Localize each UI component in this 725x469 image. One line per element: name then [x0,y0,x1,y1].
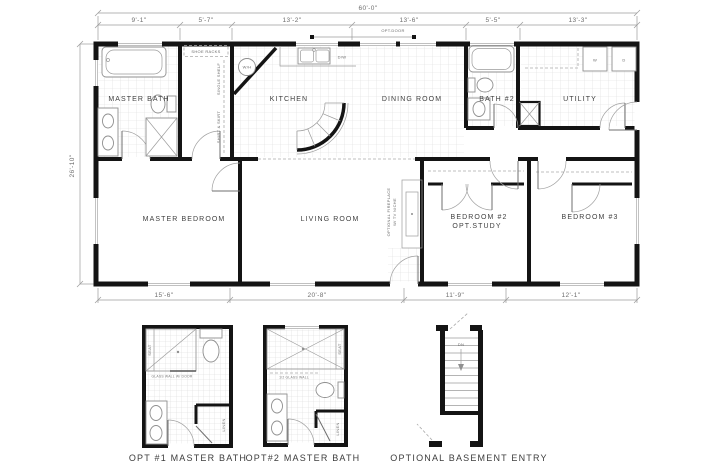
utility-exterior-door-gap [635,102,640,130]
note-shoe-racks: SHOE RACKS [191,49,220,54]
room-label-bedroom3: BEDROOM #3 [562,214,619,221]
dim-top-1: 5'-7" [199,17,214,24]
hall-closet [184,46,228,156]
note-shirt-skirt: SHIRT & SKIRT [216,111,221,144]
basement-title: OPTIONAL BASEMENT ENTRY [390,453,547,463]
opt1-seat-label: SEAT [147,344,152,356]
opt2-linen-label: LINEN [335,422,340,435]
dim-top-0: 9'-1" [132,17,147,24]
room-label-living: LIVING ROOM [301,216,360,223]
opt1-glass-label: GLASS WALL W/ DOOR [151,375,192,379]
sink [103,114,114,128]
opt2-title: OPT#2 MASTER BATH [246,453,361,463]
down-arrow-icon [458,364,464,371]
main-plan: MASTER BATH KITCHEN DINING ROOM BATH #2 … [94,28,640,287]
stair-treads [445,338,478,406]
opt2-glass-label: 1/2 GLASS WALL [279,376,309,380]
note-single-shelf: SINGLE SHELF [216,63,221,96]
dim-top-3: 13'-6" [400,17,419,24]
room-label-bedroom2-opt: OPT.STUDY [452,223,501,230]
floor-plan-drawing: 60'-0" 9'-1" 5'-7" 13'-2" 13'-6" 5'-5" 1… [0,0,725,469]
dim-ticks-top [95,16,640,40]
note-fireplace-2: W/ TV NICHE [392,198,397,226]
opt1-title: OPT #1 MASTER BATH [129,453,247,463]
sink [103,136,114,150]
bathtub [469,46,514,72]
note-water-heater: W/H [243,65,252,70]
dim-bottom-0: 15'-6" [155,292,174,299]
note-washer: W [593,58,597,63]
optional-fireplace [402,180,422,248]
note-fireplace-1: OPTIONAL FIREPLACE [386,188,391,237]
dim-bottom-1: 20'-8" [308,292,327,299]
dim-ticks-bottom [95,288,640,303]
note-dishwasher: D/W [338,55,347,60]
note-opt-door: OPT.DOOR [381,28,404,33]
optional-door-indicator [310,35,416,39]
dim-overall-width: 60'-0" [359,5,378,12]
dim-top-5: 13'-3" [569,17,588,24]
entry-floor [388,248,420,282]
room-label-dining: DINING ROOM [382,96,442,103]
room-label-master-bath: MASTER BATH [108,96,169,103]
kitchen-sink [298,48,330,64]
dim-top-4: 5'-5" [486,17,501,24]
detail-opt2-master-bath: SEAT 1/2 GLASS WALL LINEN OPT#2 MASTER B… [246,325,361,464]
sink [473,102,485,117]
opt1-linen-label: LINEN [221,418,226,431]
dim-bottom-3: 12'-1" [562,292,581,299]
dim-overall-depth: 26'-10" [69,154,76,177]
basement-dn-label: DN [458,342,464,347]
room-label-master-bedroom: MASTER BEDROOM [143,216,226,223]
floor-plan-canvas: 60'-0" 9'-1" 5'-7" 13'-2" 13'-6" 5'-5" 1… [0,0,725,469]
dim-bottom-2: 11'-9" [446,292,465,299]
detail-basement-entry: DN OPTIONAL BASEMENT ENTRY [390,313,547,463]
toilet [477,78,493,92]
note-dryer: D [622,58,625,63]
bathtub [102,47,166,77]
opt2-seat-label: SEAT [337,343,342,355]
front-door-gap [390,282,418,287]
dim-top-2: 13'-2" [283,17,302,24]
detail-opt1-master-bath: SEAT GLASS WALL W/ DOOR LINEN OPT #1 MAS… [129,327,247,463]
room-label-bath2: BATH #2 [479,96,515,103]
room-label-bedroom2: BEDROOM #2 [451,214,508,221]
room-label-utility: UTILITY [563,96,597,103]
room-label-kitchen: KITCHEN [270,96,308,103]
